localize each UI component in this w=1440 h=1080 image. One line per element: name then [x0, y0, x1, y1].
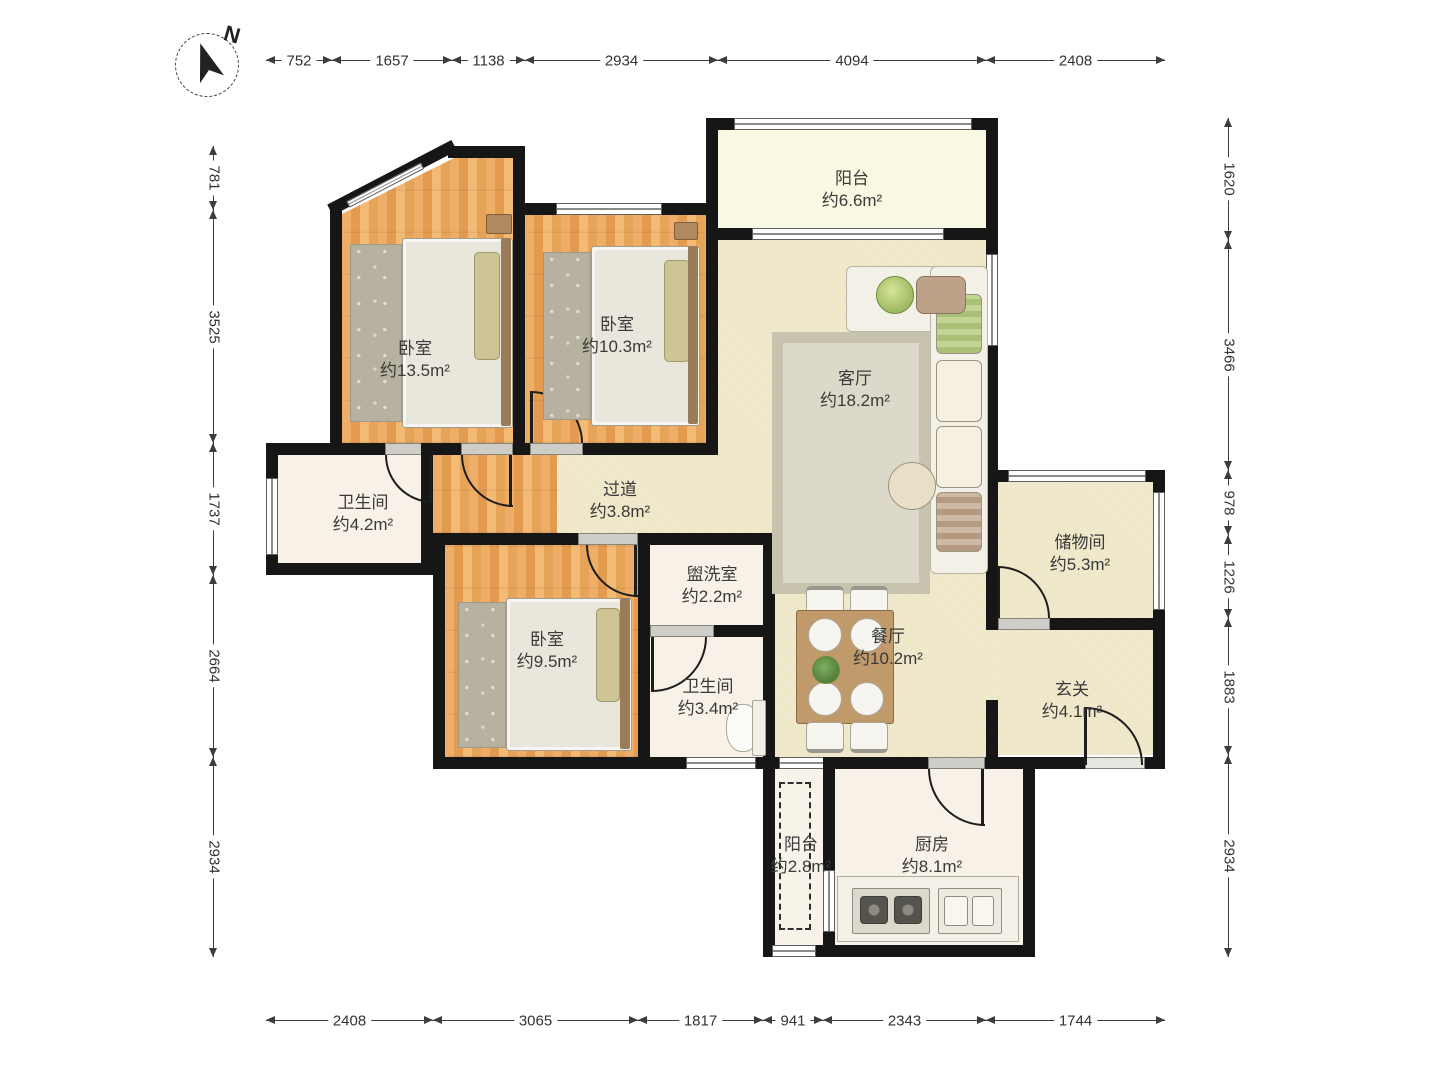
stove-burner	[860, 896, 888, 924]
wall-segment	[1050, 618, 1165, 630]
room-label-living: 客厅约18.2m²	[820, 368, 890, 412]
sofa-cushion-cream	[936, 360, 982, 422]
toilet-tank	[752, 700, 766, 756]
wall-segment	[513, 443, 530, 455]
wall-segment	[638, 533, 650, 769]
dim-left-4: 2934	[213, 757, 214, 957]
room-label-dining: 餐厅约10.2m²	[853, 626, 923, 670]
bedroom-a-rug	[350, 244, 402, 422]
window	[686, 757, 756, 769]
door-lintel	[578, 533, 638, 545]
bedroom-c-headboard	[620, 598, 630, 749]
wall-segment	[823, 757, 928, 769]
wall-segment	[1145, 757, 1165, 769]
room-label-balcony-bottom: 阳台约2.8m²	[771, 834, 831, 878]
door-leaf	[651, 637, 654, 692]
window	[1153, 492, 1165, 610]
room-label-bedroom-b: 卧室约10.3m²	[582, 314, 652, 358]
wall-segment	[433, 533, 445, 769]
door-leaf	[981, 769, 984, 826]
sofa-cushion-cream	[936, 426, 982, 488]
wall-segment	[433, 533, 578, 545]
dim-top-3: 2934	[525, 60, 718, 61]
room-label-hallway: 过道约3.8m²	[590, 479, 650, 523]
window	[1008, 470, 1146, 482]
sofa-side-tray	[916, 276, 966, 314]
door-lintel	[461, 443, 513, 455]
compass-north-label: N	[221, 20, 243, 49]
window	[772, 945, 816, 957]
room-label-bedroom-a: 卧室约13.5m²	[380, 338, 450, 382]
room-floor-entry-opening	[986, 630, 998, 700]
wall-segment	[583, 443, 718, 455]
sink-basin	[944, 896, 968, 926]
door-leaf	[530, 391, 533, 443]
dining-chair	[850, 722, 888, 753]
floor-plan-canvas: N	[0, 0, 1440, 1080]
room-label-bedroom-c: 卧室约9.5m²	[517, 629, 577, 673]
door-leaf	[997, 566, 1000, 618]
bedroom-a-headboard	[501, 238, 511, 426]
bedroom-c-rug	[458, 602, 506, 748]
dim-bottom-0: 2408	[266, 1020, 433, 1021]
wall-segment	[513, 146, 525, 455]
wall-segment	[433, 757, 650, 769]
wall-segment	[823, 945, 1035, 957]
dim-left-1: 3525	[213, 210, 214, 443]
dim-top-4: 4094	[718, 60, 986, 61]
dim-right-0: 1620	[1228, 118, 1229, 240]
door-lintel	[998, 618, 1050, 630]
window	[266, 478, 278, 555]
sink-basin	[972, 896, 994, 926]
dim-right-3: 1226	[1228, 535, 1229, 618]
room-label-entry: 玄关约4.1m²	[1042, 679, 1102, 723]
bedroom-a-nightstand	[486, 214, 512, 234]
window	[752, 228, 944, 240]
wall-segment	[985, 757, 1085, 769]
room-label-kitchen: 厨房约8.1m²	[902, 834, 962, 878]
dim-right-1: 3466	[1228, 240, 1229, 470]
door-lintel	[530, 443, 583, 455]
dim-top-0: 752	[266, 60, 332, 61]
room-label-balcony-top: 阳台约6.6m²	[822, 168, 882, 212]
bedroom-b-pillow	[664, 260, 690, 362]
bedroom-a-pillow	[474, 252, 500, 360]
dim-bottom-4: 2343	[823, 1020, 986, 1021]
room-label-bathroom-a: 卫生间约4.2m²	[333, 492, 393, 536]
wall-segment	[706, 203, 718, 455]
wall-segment	[433, 443, 461, 455]
sofa-ottoman	[888, 462, 936, 510]
room-label-bathroom-b: 卫生间约3.4m²	[678, 676, 738, 720]
dim-right-5: 2934	[1228, 755, 1229, 957]
dim-bottom-3: 941	[763, 1020, 823, 1021]
room-label-washroom: 盥洗室约2.2m²	[682, 564, 742, 608]
door-lintel	[650, 625, 714, 637]
door-leaf	[634, 545, 637, 597]
dim-bottom-2: 1817	[638, 1020, 763, 1021]
dim-right-4: 1883	[1228, 618, 1229, 755]
dim-left-0: 781	[213, 146, 214, 210]
dim-left-2: 1737	[213, 443, 214, 575]
bedroom-b-nightstand	[674, 222, 698, 240]
stove-burner	[894, 896, 922, 924]
sofa-cushion-brown	[936, 492, 982, 552]
bedroom-c-pillow	[596, 608, 620, 702]
window	[734, 118, 972, 130]
dining-chair	[806, 722, 844, 753]
wall-segment	[266, 563, 433, 575]
window	[556, 203, 662, 215]
door-leaf	[509, 455, 512, 507]
wall-segment	[266, 443, 385, 455]
door-lintel	[928, 757, 985, 769]
wall-segment	[638, 533, 775, 545]
dim-top-5: 2408	[986, 60, 1165, 61]
wall-segment	[1023, 769, 1035, 957]
dim-top-2: 1138	[452, 60, 525, 61]
dining-plate	[850, 682, 884, 716]
dim-bottom-5: 1744	[986, 1020, 1165, 1021]
dim-right-2: 978	[1228, 470, 1229, 535]
dim-left-3: 2664	[213, 575, 214, 757]
living-plant	[876, 276, 914, 314]
dim-top-1: 1657	[332, 60, 452, 61]
dim-bottom-1: 3065	[433, 1020, 638, 1021]
door-leaf	[429, 455, 432, 503]
room-label-storage: 储物间约5.3m²	[1050, 532, 1110, 576]
dining-plate	[808, 682, 842, 716]
wall-segment	[986, 118, 998, 240]
dining-plant	[812, 656, 840, 684]
bedroom-b-headboard	[688, 246, 698, 424]
wall-segment	[330, 210, 342, 455]
dining-plate	[808, 618, 842, 652]
window	[823, 870, 835, 932]
window	[779, 757, 825, 769]
